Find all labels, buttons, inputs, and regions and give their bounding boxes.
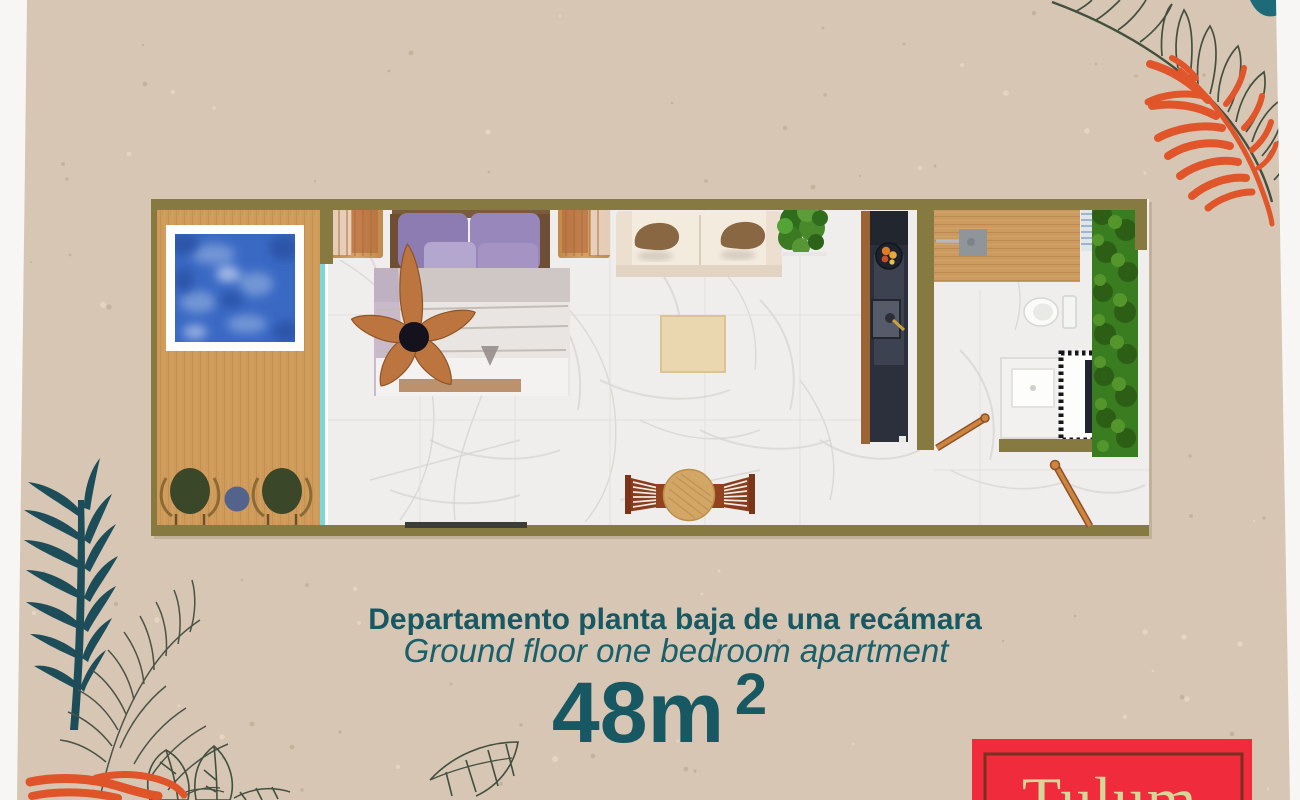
svg-text:48m: 48m [552,665,724,761]
svg-text:Ground floor one bedroom apart: Ground floor one bedroom apartment [404,632,951,669]
svg-text:2: 2 [735,662,767,727]
svg-text:Tulum: Tulum [1022,764,1198,800]
